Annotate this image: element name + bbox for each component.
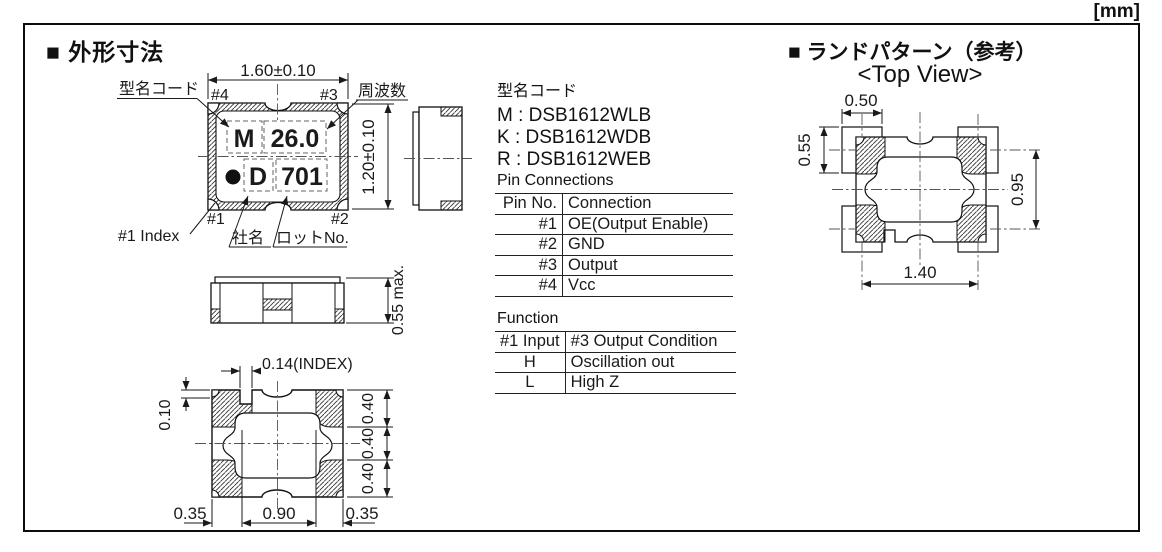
table-header-row: #1 Input #3 Output Condition (495, 332, 736, 353)
pin2-label: #2 (331, 211, 349, 228)
pin3-label: #3 (320, 87, 338, 104)
dim-land-vertical-pitch: 0.95 (1008, 173, 1027, 206)
header-input: #1 Input (495, 332, 565, 353)
dim-package-thickness: 0.55 max. (390, 265, 407, 335)
dim-right-3: 0.40 (360, 463, 377, 494)
cell-pin-no: #3 (495, 255, 563, 276)
marking-frequency: 26.0 (271, 125, 320, 153)
cell-connection: OE(Output Enable) (563, 214, 734, 235)
cell-output-condition: High Z (565, 373, 736, 394)
table-row: #3 Output (495, 255, 733, 276)
dim-land-pad-height: 0.55 (795, 133, 814, 166)
model-code-list: 型名コード M : DSB1612WLB K : DSB1612WDB R : … (497, 77, 651, 171)
marking-company: D (249, 163, 267, 191)
cell-connection: Vcc (563, 276, 734, 297)
cell-pin-no: #4 (495, 276, 563, 297)
header-output-condition: #3 Output Condition (565, 332, 736, 353)
cell-pin-no: #1 (495, 214, 563, 235)
package-front-view: 0.55 max. (211, 265, 407, 335)
callout-lot-no: ロットNo. (276, 230, 349, 247)
table-row: L High Z (495, 373, 736, 394)
dim-package-width: 1.60±0.10 (240, 61, 316, 80)
cell-input: L (495, 373, 565, 394)
cell-connection: GND (563, 235, 734, 256)
model-code-item: R : DSB1612WEB (497, 149, 651, 171)
table-row: #2 GND (495, 235, 733, 256)
dim-right-2: 0.40 (360, 428, 377, 459)
cell-output-condition: Oscillation out (565, 352, 736, 373)
model-code-list-title: 型名コード (497, 77, 651, 101)
function-table: #1 Input #3 Output Condition H Oscillati… (495, 331, 736, 394)
dim-bottom-right: 0.35 (345, 504, 378, 523)
package-bottom-view: 0.14(INDEX) 0.10 0.40 0.40 0.40 0.35 0.9… (157, 356, 393, 527)
top-view-subtitle: <Top View> (800, 61, 1040, 89)
cell-pin-no: #2 (495, 235, 563, 256)
dim-index-width: 0.14(INDEX) (262, 356, 353, 373)
package-top-view: M 26.0 D 701 #4 #3 #1 #2 1.60±0.10 1.20±… (117, 61, 408, 247)
index-dot (226, 170, 241, 185)
callout-company: 社名 (232, 229, 264, 247)
marking-model-code: M (234, 125, 255, 153)
land-pattern-drawing: 0.50 0.55 0.95 1.40 (795, 91, 1042, 290)
function-block: Function #1 Input #3 Output Condition H … (495, 310, 736, 394)
package-side-view (404, 107, 472, 210)
dim-bottom-center: 0.90 (262, 504, 295, 523)
callout-model-code: 型名コード (119, 80, 199, 98)
pin-connections-title: Pin Connections (495, 172, 733, 190)
dim-right-1: 0.40 (360, 393, 377, 424)
pin-connections-block: Pin Connections Pin No. Connection #1 OE… (495, 172, 733, 297)
model-code-item: M : DSB1612WLB (497, 105, 651, 127)
table-row: H Oscillation out (495, 352, 736, 373)
table-row: #1 OE(Output Enable) (495, 214, 733, 235)
header-pin-no: Pin No. (495, 194, 563, 215)
dim-index-depth: 0.10 (157, 399, 174, 430)
table-header-row: Pin No. Connection (495, 194, 733, 215)
table-row: #4 Vcc (495, 276, 733, 297)
function-title: Function (495, 310, 736, 328)
pin4-label: #4 (211, 87, 229, 104)
dim-land-pad-width: 0.50 (844, 91, 877, 110)
marking-lot-no: 701 (281, 163, 323, 191)
cell-connection: Output (563, 255, 734, 276)
outline-section-title: ■ 外形寸法 (46, 33, 164, 67)
pin-connections-table: Pin No. Connection #1 OE(Output Enable) … (495, 193, 733, 297)
dim-bottom-left: 0.35 (173, 504, 206, 523)
model-code-item: K : DSB1612WDB (497, 127, 651, 149)
dim-land-horizontal-pitch: 1.40 (903, 263, 936, 282)
pin1-label: #1 (207, 211, 225, 228)
header-connection: Connection (563, 194, 734, 215)
callout-frequency: 周波数 (358, 82, 406, 100)
callout-index: #1 Index (118, 228, 179, 245)
dim-package-height: 1.20±0.10 (359, 119, 378, 195)
datasheet-page: [mm] (0, 0, 1162, 552)
cell-input: H (495, 352, 565, 373)
